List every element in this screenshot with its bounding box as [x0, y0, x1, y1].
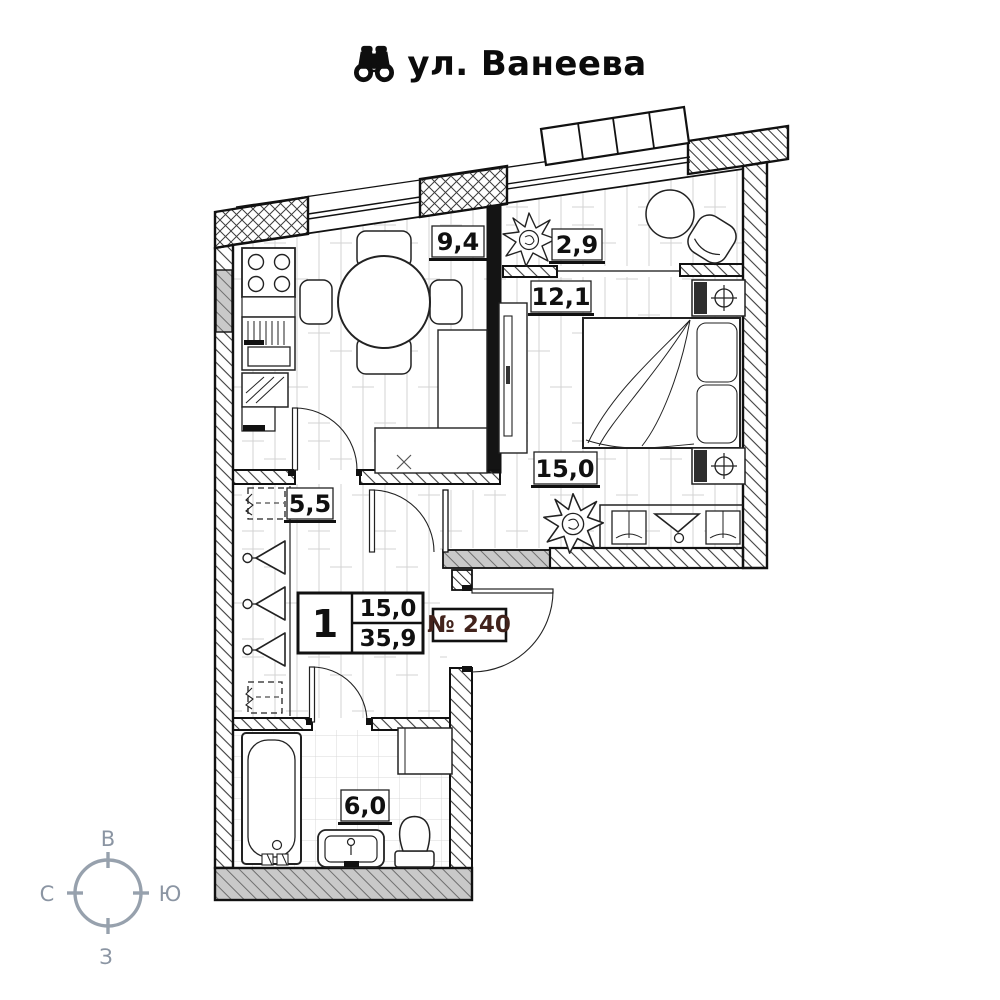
label-loggia-area: 2,9 [549, 229, 605, 264]
loggia-table [646, 190, 694, 238]
compass-south: Ю [159, 882, 182, 906]
door-number: № 240 [427, 612, 511, 638]
stove [242, 248, 295, 297]
compass-rose: В С Ю З [40, 827, 182, 969]
apartment-info-box: 1 15,0 35,9 [298, 593, 423, 653]
bed [583, 318, 740, 448]
screenshot-stage: ул. Ванеева [0, 0, 1000, 1000]
svg-text:12,1: 12,1 [531, 283, 590, 311]
svg-text:15,0: 15,0 [535, 455, 594, 483]
balcony-rail [541, 107, 689, 165]
svg-text:2,9: 2,9 [556, 231, 599, 259]
total-area-value: 35,9 [360, 626, 417, 652]
tv-unit [499, 303, 527, 453]
compass-north: С [40, 882, 55, 906]
nightstand-top [692, 280, 745, 316]
washing-machine [398, 728, 452, 774]
toilet [395, 817, 434, 868]
kitchen-counter [242, 297, 295, 317]
floor-plan: 9,4 2,9 12,1 15,0 5,5 [0, 0, 1000, 1000]
rooms-count: 1 [312, 602, 338, 646]
label-living-area: 15,0 [531, 452, 600, 488]
dining-table [338, 256, 430, 348]
compass-west: З [99, 945, 112, 969]
label-bathroom-area: 6,0 [338, 790, 392, 825]
svg-text:6,0: 6,0 [344, 792, 387, 820]
compass-east: В [101, 827, 115, 851]
label-bedroom-area: 12,1 [528, 281, 594, 316]
kitchen-sink [242, 317, 295, 370]
svg-text:5,5: 5,5 [289, 490, 332, 518]
door-number-badge: № 240 [427, 609, 511, 641]
svg-text:9,4: 9,4 [437, 228, 480, 256]
living-area-value: 15,0 [360, 596, 417, 622]
bathtub [242, 733, 301, 865]
label-kitchen-area: 9,4 [429, 226, 487, 261]
nightstand-bottom [692, 448, 745, 484]
bathroom-sink [318, 830, 384, 867]
label-hallway-area: 5,5 [284, 488, 336, 523]
